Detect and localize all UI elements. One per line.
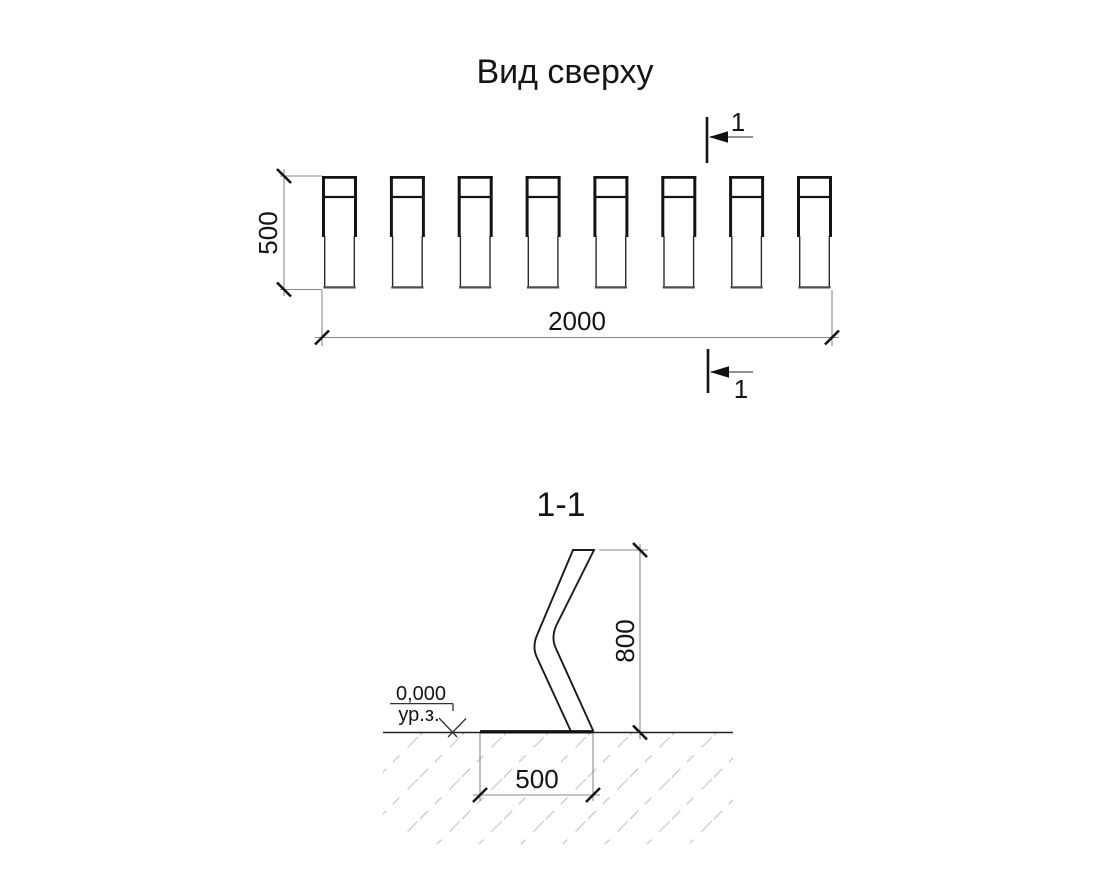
rack-element [322, 176, 357, 288]
dim-foundation-width-value: 500 [515, 764, 558, 794]
section-marker-bottom: 1 [708, 349, 753, 404]
dimension-top-width: 2000 [315, 290, 839, 346]
level-elevation-value: 0,000 [396, 683, 446, 705]
dimension-top-height: 500 [253, 169, 322, 297]
drawing-canvas: Вид сверху 500 2000 1 1 1-1 [0, 0, 1110, 879]
dimension-section-height: 800 [599, 543, 648, 740]
rack-row [322, 176, 832, 288]
top-view-title: Вид сверху [476, 53, 653, 91]
level-mark: 0,000 ур.з. [390, 683, 466, 737]
dim-top-height-value: 500 [253, 211, 283, 254]
rack-element [526, 176, 561, 288]
rack-element [593, 176, 628, 288]
rack-element [458, 176, 493, 288]
section-arrow-bottom [710, 366, 729, 378]
ground-level-label: ур.з. [398, 704, 439, 726]
rack-element [797, 176, 832, 288]
dim-section-height-value: 800 [610, 619, 640, 662]
drawing-page: Вид сверху 500 2000 1 1 1-1 [0, 0, 1110, 879]
rack-post-section [534, 550, 595, 732]
section-marker-bottom-label: 1 [734, 374, 748, 404]
dim-top-width-value: 2000 [548, 306, 606, 336]
section-marker-top-label: 1 [731, 107, 745, 137]
rack-element [729, 176, 764, 288]
section-title: 1-1 [536, 486, 585, 524]
rack-element [390, 176, 425, 288]
section-arrow-top [709, 131, 728, 143]
rack-element [661, 176, 696, 288]
section-marker-top: 1 [707, 107, 753, 163]
